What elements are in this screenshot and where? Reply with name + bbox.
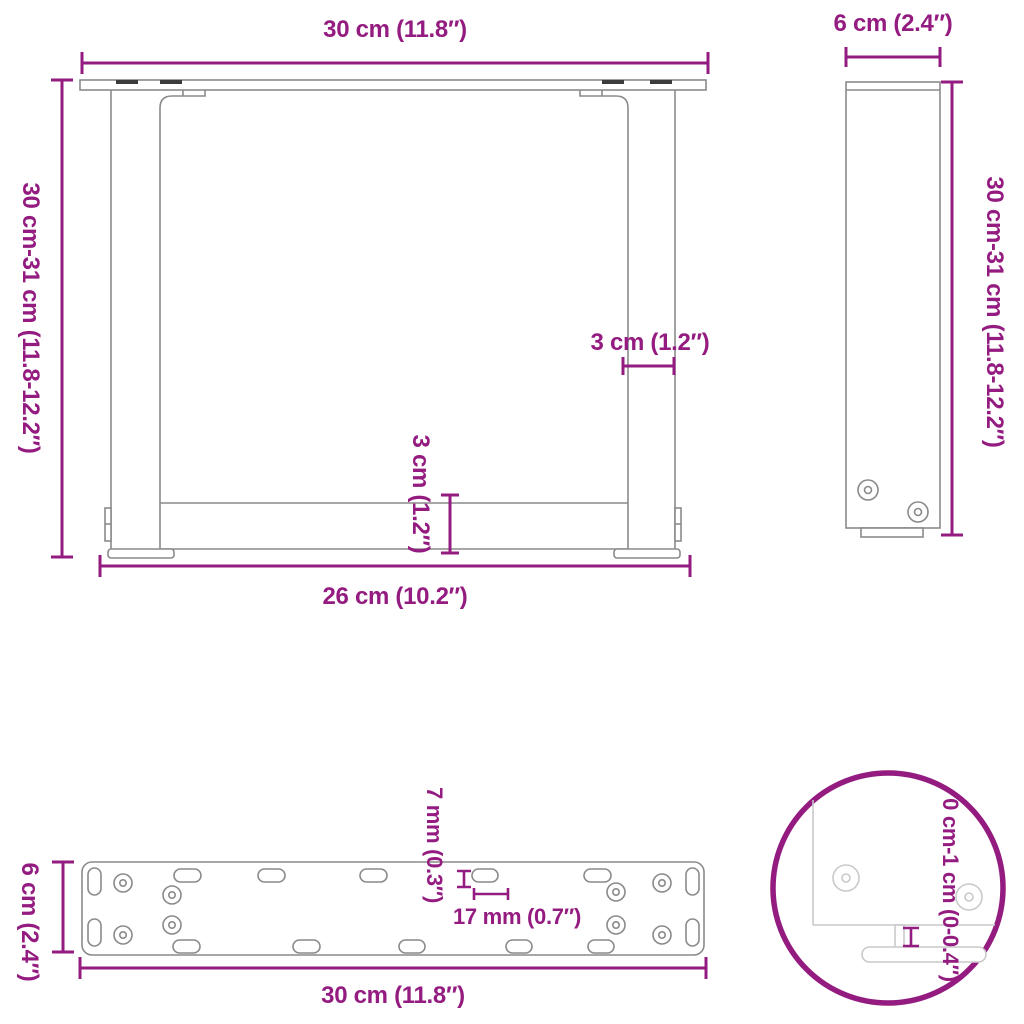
plate-slot-length-label: 17 mm (0.7″)	[453, 904, 581, 930]
diagram-linework	[0, 0, 1024, 1024]
side-height-label: 30 cm-31 cm (11.8-12.2″)	[980, 176, 1008, 447]
side-foot	[861, 528, 923, 537]
front-left-foot	[108, 549, 174, 558]
front-view-drawing	[80, 80, 706, 558]
plate-view-drawing	[82, 862, 704, 955]
front-inner-width-line	[100, 555, 690, 577]
detail-adjust-height-label: 0 cm-1 cm (0-0.4″)	[937, 798, 963, 982]
front-crossbar-thickness-label: 3 cm (1.2″)	[406, 435, 434, 554]
front-leg-thickness-label: 3 cm (1.2″)	[591, 329, 710, 357]
front-plate-slot	[116, 80, 138, 84]
front-inner-width-label: 26 cm (10.2″)	[322, 583, 467, 611]
front-left-leg-inner	[160, 90, 205, 549]
foot-detail-drawing	[773, 773, 1003, 1003]
front-plate-slot	[160, 80, 182, 84]
front-plate-slot	[650, 80, 672, 84]
front-view-dimensions	[51, 52, 708, 577]
plate-width-label: 30 cm (11.8″)	[321, 982, 465, 1010]
front-leg-thickness-line	[623, 357, 674, 375]
plate-depth-dimension-line	[52, 862, 74, 952]
front-height-dimension-line	[51, 80, 73, 557]
plate-width-dimension-line	[80, 957, 706, 979]
front-right-foot	[614, 549, 680, 558]
detail-foot-stem	[895, 925, 904, 948]
side-leg-body	[846, 82, 940, 528]
plate-depth-label: 6 cm (2.4″)	[15, 863, 43, 982]
side-depth-dimension-line	[846, 47, 940, 67]
side-depth-label: 6 cm (2.4″)	[834, 10, 953, 38]
front-plate-slot	[602, 80, 624, 84]
side-height-dimension-line	[941, 82, 963, 535]
dimension-diagram: 30 cm (11.8″) 30 cm-31 cm (11.8-12.2″) 3…	[0, 0, 1024, 1024]
front-height-label: 30 cm-31 cm (11.8-12.2″)	[16, 182, 44, 453]
detail-foot-pad	[862, 947, 986, 962]
detail-circle	[773, 773, 1003, 1003]
front-width-dimension-line	[82, 52, 708, 74]
side-view-drawing	[846, 82, 940, 537]
front-right-leg-inner	[580, 90, 628, 549]
plate-slot-height-label: 7 mm (0.3″)	[421, 787, 447, 903]
front-width-label: 30 cm (11.8″)	[323, 16, 467, 44]
